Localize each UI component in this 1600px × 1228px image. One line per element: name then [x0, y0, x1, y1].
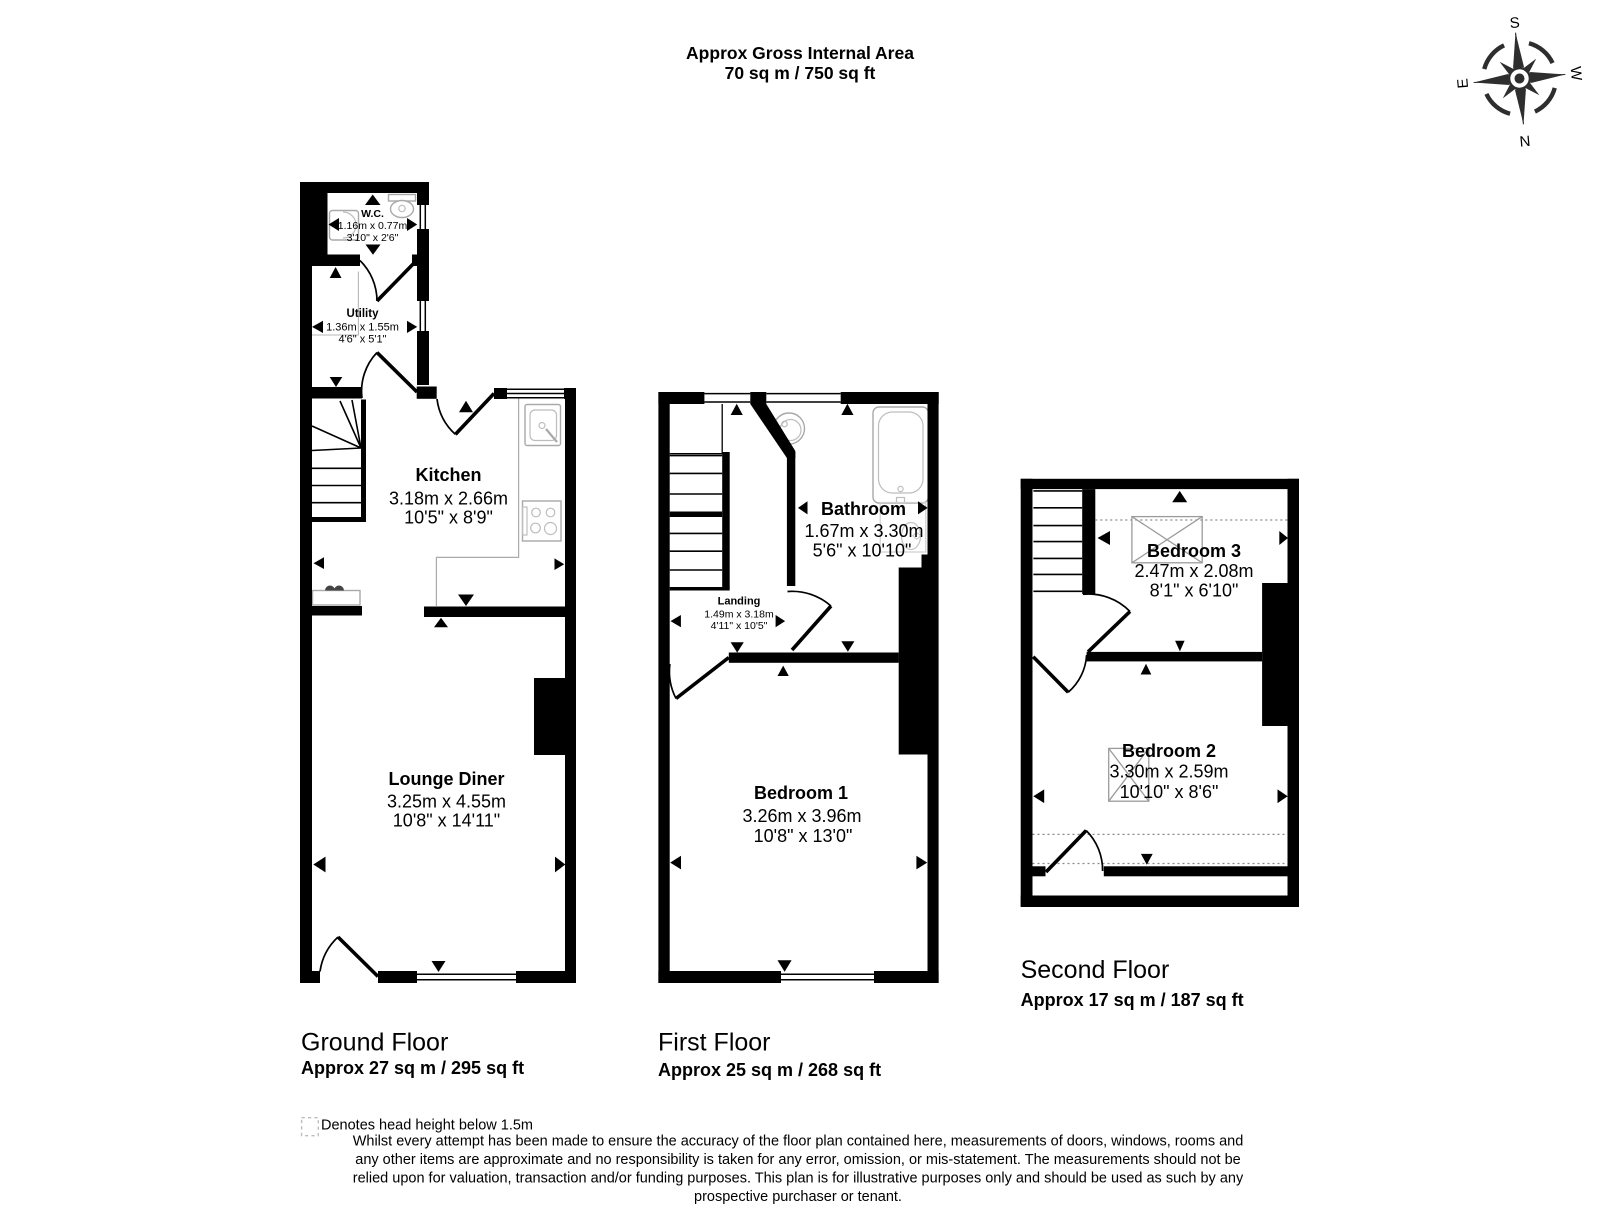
svg-text:S: S — [1509, 14, 1520, 32]
svg-text:1.16m x 0.77m: 1.16m x 0.77m — [338, 220, 408, 232]
svg-text:Bedroom 2: Bedroom 2 — [1122, 741, 1216, 761]
svg-text:2.47m x 2.08m: 2.47m x 2.08m — [1134, 561, 1253, 581]
svg-text:8'1" x 6'10": 8'1" x 6'10" — [1150, 581, 1239, 601]
svg-text:10'8" x 13'0": 10'8" x 13'0" — [754, 826, 853, 846]
svg-text:Bedroom 1: Bedroom 1 — [754, 783, 848, 803]
svg-text:1.36m x 1.55m: 1.36m x 1.55m — [326, 322, 399, 334]
svg-text:3.18m x 2.66m: 3.18m x 2.66m — [389, 489, 508, 509]
svg-text:5'6" x 10'10": 5'6" x 10'10" — [813, 541, 912, 561]
svg-text:Approx 17 sq m / 187 sq ft: Approx 17 sq m / 187 sq ft — [1021, 990, 1244, 1010]
svg-text:1.49m x 3.18m: 1.49m x 3.18m — [704, 609, 774, 621]
svg-text:10'8" x 14'11": 10'8" x 14'11" — [393, 811, 500, 831]
svg-text:relied upon for valuation, tra: relied upon for valuation, transaction a… — [353, 1171, 1244, 1187]
svg-text:Approx 27 sq m / 295 sq ft: Approx 27 sq m / 295 sq ft — [301, 1058, 524, 1078]
svg-text:N: N — [1519, 133, 1531, 151]
svg-text:Bedroom 3: Bedroom 3 — [1147, 541, 1241, 561]
svg-text:any other items are approximat: any other items are approximate and no r… — [355, 1152, 1240, 1168]
svg-text:Whilst every attempt has been: Whilst every attempt has been made to en… — [353, 1134, 1244, 1150]
svg-text:Denotes head height below 1.5m: Denotes head height below 1.5m — [321, 1118, 533, 1134]
svg-text:Ground Floor: Ground Floor — [301, 1029, 448, 1057]
svg-text:Landing: Landing — [718, 596, 761, 608]
svg-text:4'11" x 10'5": 4'11" x 10'5" — [711, 620, 768, 632]
svg-text:prospective purchaser or tenan: prospective purchaser or tenant. — [694, 1189, 902, 1205]
svg-text:70 sq m / 750 sq ft: 70 sq m / 750 sq ft — [725, 63, 876, 83]
svg-text:Approx 25 sq m / 268 sq ft: Approx 25 sq m / 268 sq ft — [658, 1060, 881, 1080]
svg-text:Lounge Diner: Lounge Diner — [389, 769, 505, 789]
svg-text:3'10" x 2'6": 3'10" x 2'6" — [347, 232, 399, 244]
svg-text:W.C.: W.C. — [361, 208, 384, 220]
svg-text:10'5" x 8'9": 10'5" x 8'9" — [404, 508, 493, 528]
svg-text:E: E — [1454, 78, 1472, 89]
svg-text:Second Floor: Second Floor — [1021, 956, 1170, 984]
svg-text:W: W — [1567, 66, 1585, 82]
svg-text:10'10" x 8'6": 10'10" x 8'6" — [1120, 782, 1219, 802]
svg-text:Kitchen: Kitchen — [415, 465, 481, 485]
svg-text:1.67m x 3.30m: 1.67m x 3.30m — [804, 521, 923, 541]
svg-text:3.26m x 3.96m: 3.26m x 3.96m — [742, 806, 861, 826]
svg-text:First Floor: First Floor — [658, 1029, 771, 1057]
svg-text:Utility: Utility — [347, 308, 380, 320]
svg-text:3.30m x 2.59m: 3.30m x 2.59m — [1109, 762, 1228, 782]
svg-text:Bathroom: Bathroom — [821, 499, 906, 519]
svg-text:3.25m x 4.55m: 3.25m x 4.55m — [387, 792, 506, 812]
svg-text:4'6" x 5'1": 4'6" x 5'1" — [338, 334, 386, 346]
svg-text:Approx Gross Internal Area: Approx Gross Internal Area — [686, 43, 914, 63]
